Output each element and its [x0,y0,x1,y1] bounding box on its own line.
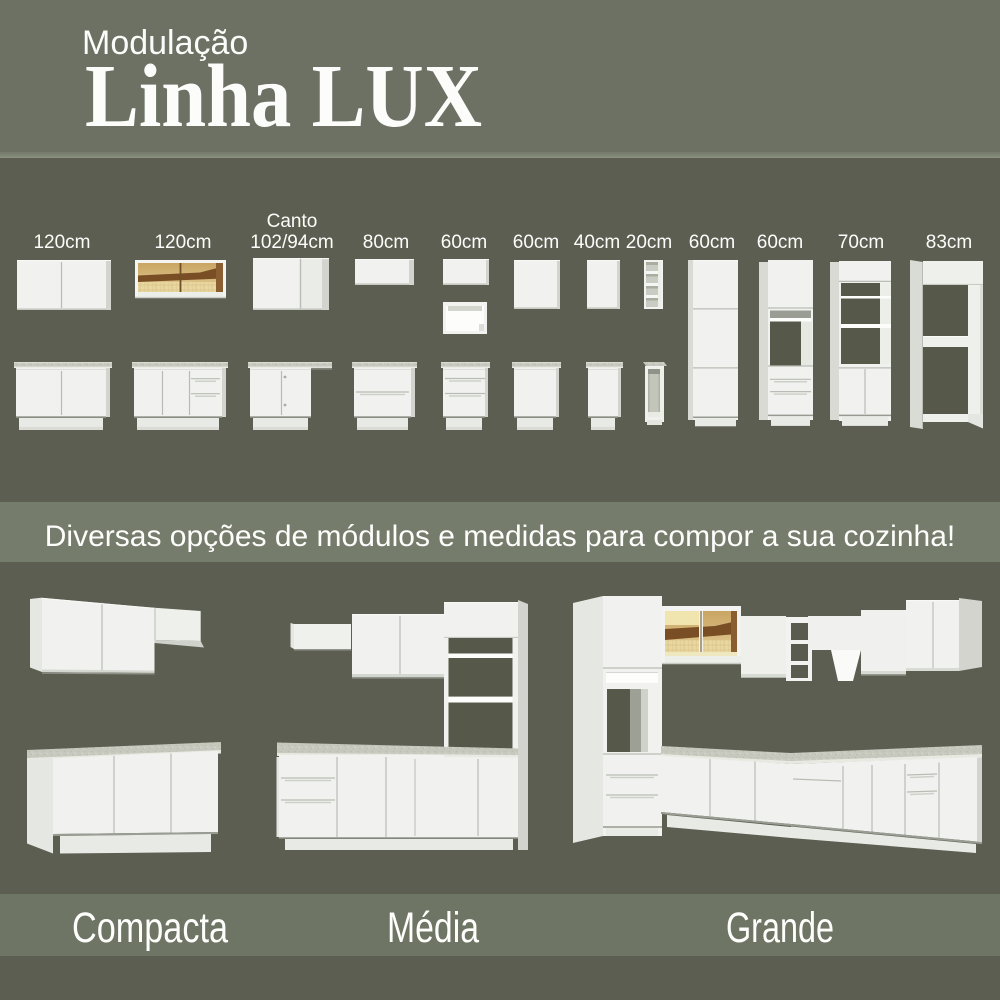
svg-text:Compacta: Compacta [72,904,228,952]
svg-text:120cm: 120cm [154,232,211,253]
svg-text:40cm: 40cm [574,232,620,253]
svg-text:Linha LUX: Linha LUX [85,47,482,146]
svg-text:Grande: Grande [726,904,834,952]
svg-text:Canto: Canto [267,211,318,232]
svg-text:60cm: 60cm [757,232,803,253]
svg-text:20cm: 20cm [626,232,672,253]
svg-text:Diversas opções de módulos e m: Diversas opções de módulos e medidas par… [45,520,956,553]
svg-text:83cm: 83cm [926,232,972,253]
svg-text:60cm: 60cm [513,232,559,253]
svg-text:120cm: 120cm [33,232,90,253]
svg-text:60cm: 60cm [689,232,735,253]
svg-text:60cm: 60cm [441,232,487,253]
svg-text:80cm: 80cm [363,232,409,253]
svg-text:Média: Média [387,904,479,952]
svg-text:102/94cm: 102/94cm [250,232,333,253]
svg-text:70cm: 70cm [838,232,884,253]
